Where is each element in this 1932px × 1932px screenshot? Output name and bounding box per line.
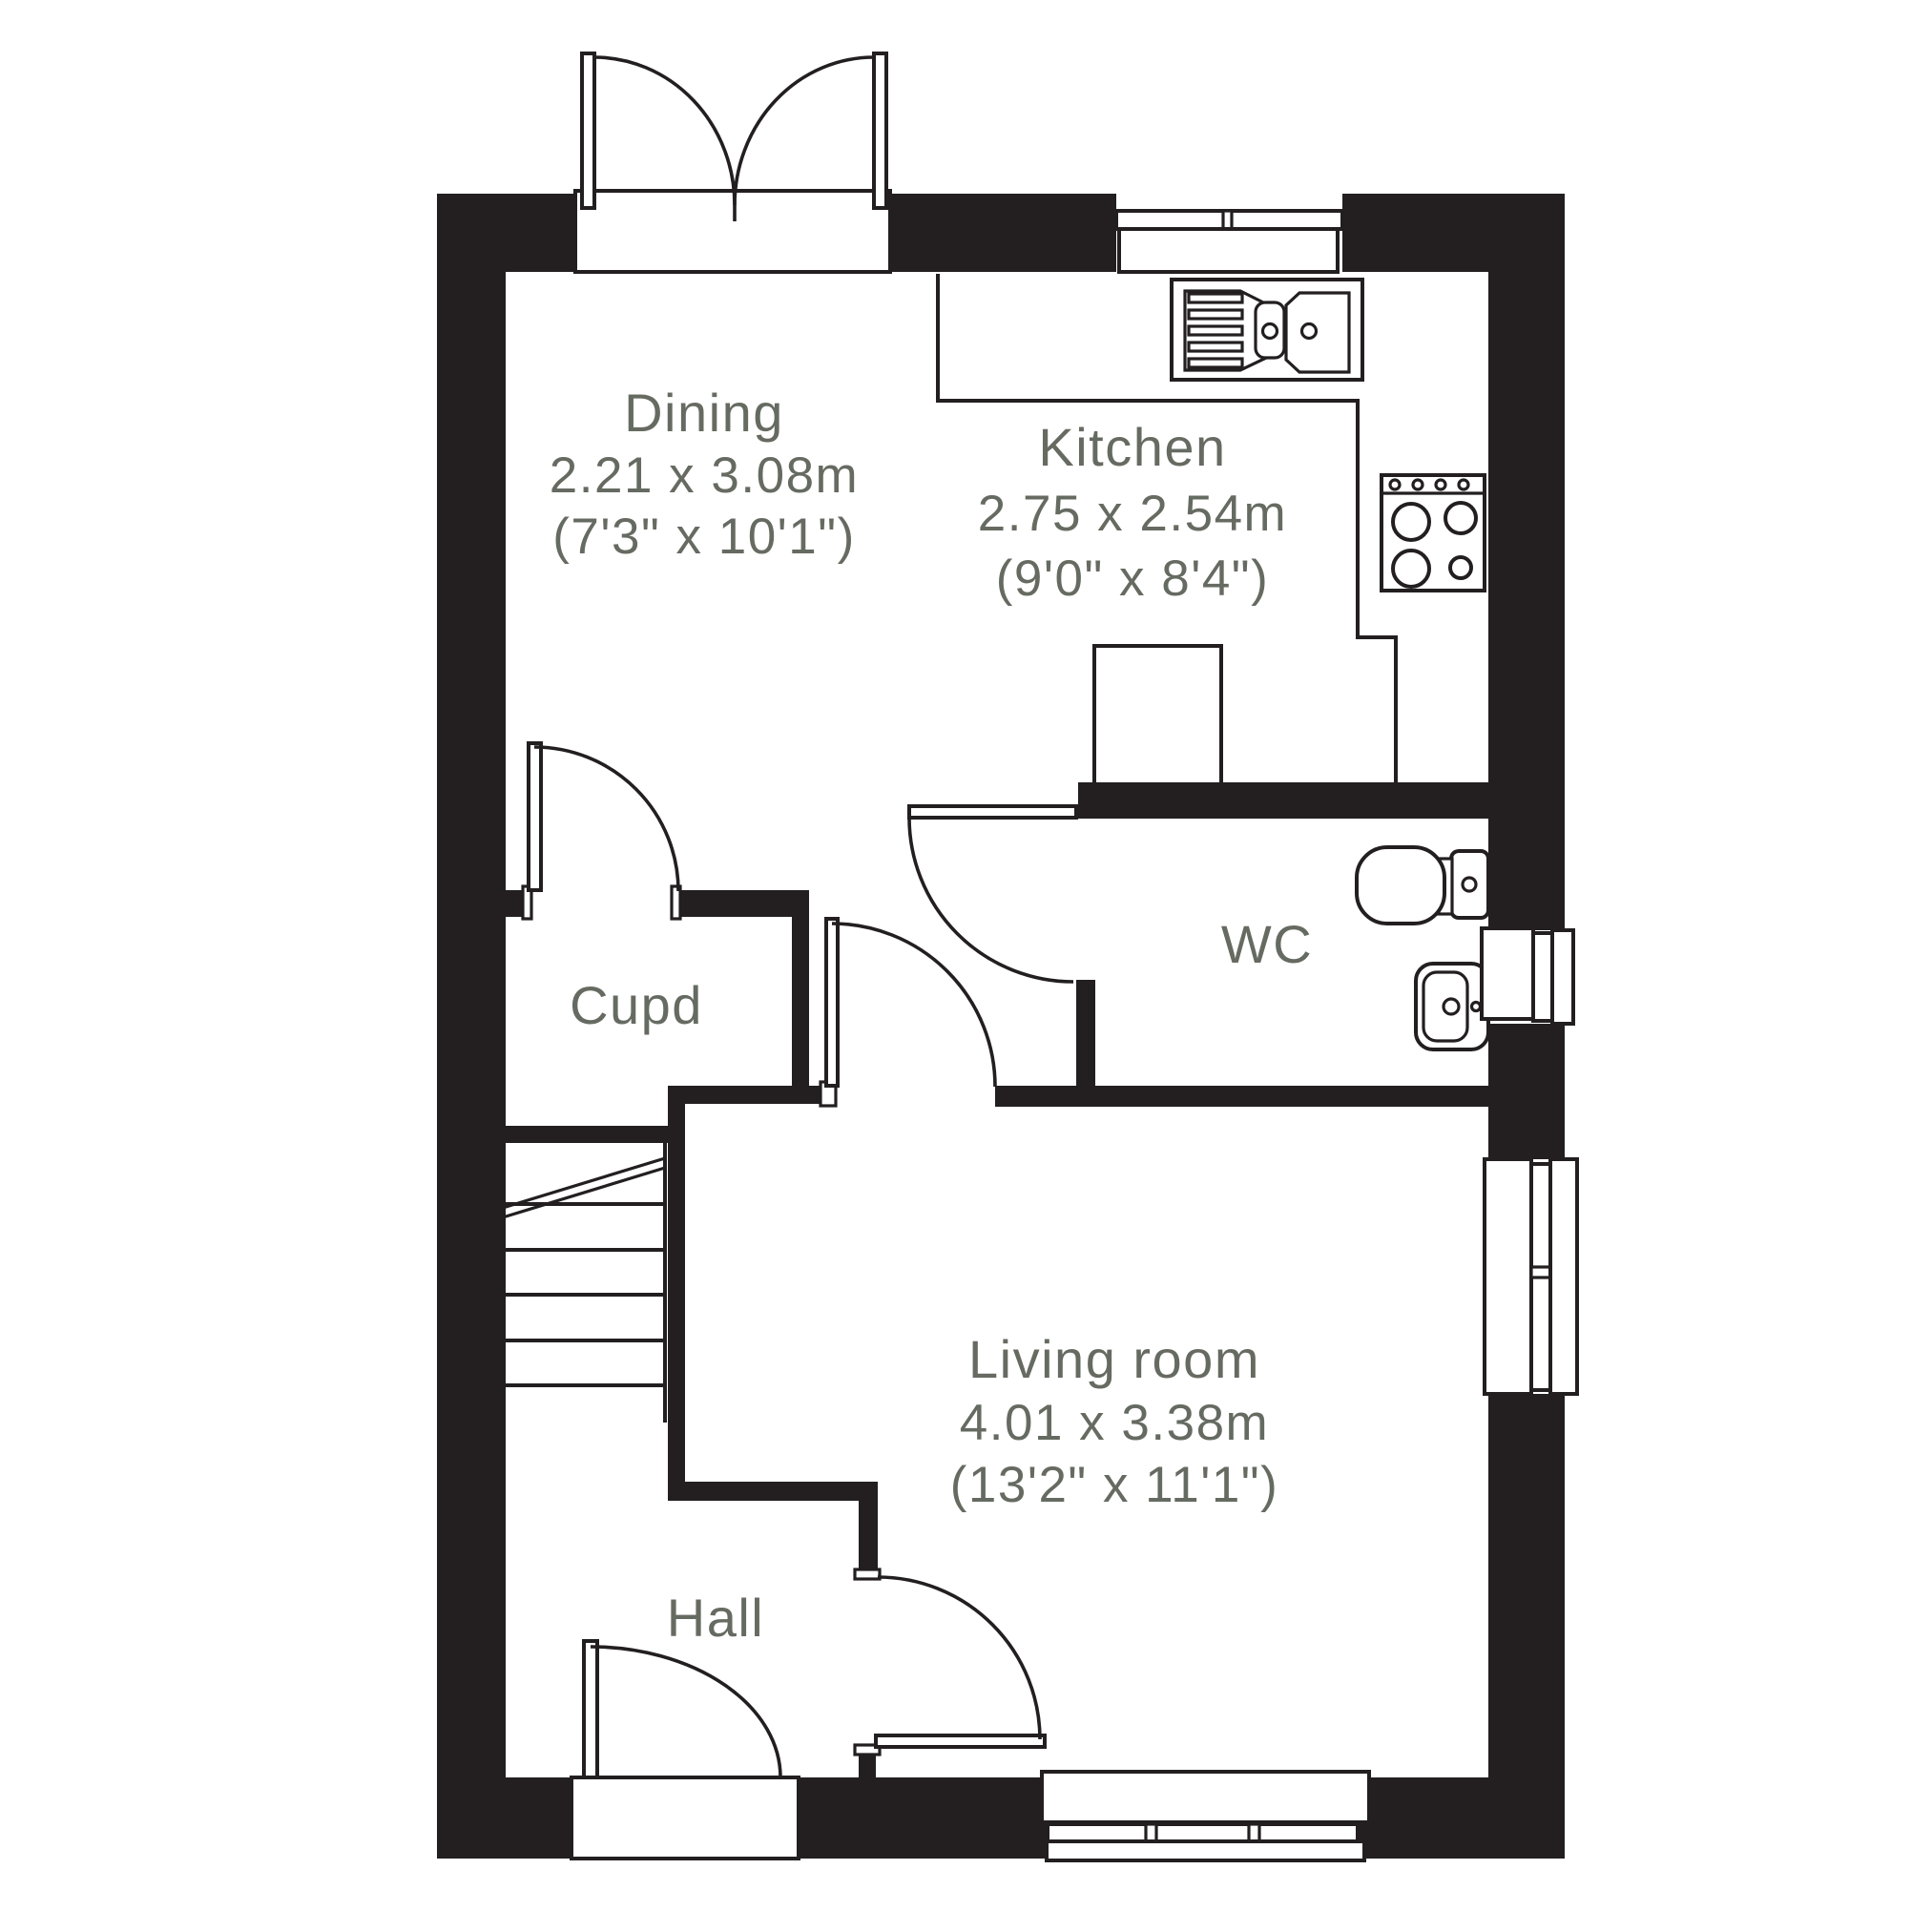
window-mullion xyxy=(1223,211,1232,229)
door-frame-notch xyxy=(855,1569,880,1579)
window-frame xyxy=(1550,1159,1577,1394)
window-mullion xyxy=(1531,1267,1550,1278)
door-leaf xyxy=(874,53,886,208)
wc-door xyxy=(909,806,1076,982)
wash-basin xyxy=(1416,964,1488,1049)
door-swing-arc xyxy=(594,57,735,205)
window-frame xyxy=(1552,930,1573,1024)
living-label: Living room xyxy=(968,1329,1260,1389)
wc-window xyxy=(1482,928,1573,1024)
window-mullion xyxy=(1249,1824,1259,1841)
wc-label: WC xyxy=(1221,914,1313,974)
window-sill xyxy=(1482,928,1533,1019)
door-leaf xyxy=(826,919,838,1086)
stair-break-line xyxy=(503,1168,665,1217)
drainer-slat xyxy=(1189,343,1242,351)
door-leaf xyxy=(529,743,541,890)
kitchen-sink xyxy=(1172,280,1362,380)
appliance-unit xyxy=(1094,646,1221,792)
cupboard-door xyxy=(529,743,678,891)
kitchen-label: Kitchen xyxy=(1038,417,1226,477)
window-glazing xyxy=(1533,933,1552,1021)
sink-half-bowl xyxy=(1256,302,1284,358)
door-swing-arc xyxy=(534,747,678,891)
floor-plan: Dining 2.21 x 3.08m (7'3" x 10'1") Kitch… xyxy=(0,0,1932,1932)
toilet-cistern xyxy=(1451,851,1488,918)
floor-plan-page: Dining 2.21 x 3.08m (7'3" x 10'1") Kitch… xyxy=(0,0,1932,1932)
toilet-bowl xyxy=(1357,847,1444,924)
dining-imperial: (7'3" x 10'1") xyxy=(552,509,856,565)
staircase xyxy=(503,1143,665,1423)
drainer-slat xyxy=(1189,326,1242,335)
cupboard-label: Cupd xyxy=(570,975,703,1035)
door-swing-arc xyxy=(878,1577,1040,1739)
door-threshold xyxy=(571,1777,799,1859)
hall-label: Hall xyxy=(667,1588,764,1648)
hall-living-door xyxy=(876,1577,1045,1747)
door-leaf xyxy=(584,1641,597,1777)
door-threshold xyxy=(575,191,890,272)
window-sill xyxy=(1485,1159,1531,1394)
hob xyxy=(1381,475,1485,591)
front-door xyxy=(571,1641,799,1859)
kitchen-metric: 2.75 x 2.54m xyxy=(978,486,1287,542)
living-room-rear-window xyxy=(1042,1772,1369,1860)
basin-bowl xyxy=(1423,972,1467,1041)
room-labels: Dining 2.21 x 3.08m (7'3" x 10'1") Kitch… xyxy=(550,383,1313,1648)
living-imperial: (13'2" x 11'1") xyxy=(950,1457,1279,1513)
sink-main-bowl xyxy=(1286,293,1349,372)
door-frame-notch xyxy=(672,886,680,919)
window-frame xyxy=(1047,1841,1364,1860)
french-doors xyxy=(575,53,890,272)
door-leaf xyxy=(582,53,594,208)
window-sill xyxy=(1042,1772,1369,1822)
living-metric: 4.01 x 3.38m xyxy=(960,1395,1269,1451)
window-sill xyxy=(1119,229,1338,272)
window-glazing xyxy=(1048,1824,1358,1841)
toilet xyxy=(1357,847,1488,924)
drainer-slat xyxy=(1189,294,1242,302)
door-leaf xyxy=(909,806,1076,818)
dining-metric: 2.21 x 3.08m xyxy=(550,447,859,504)
door-swing-arc xyxy=(591,1647,780,1777)
door-leaf xyxy=(876,1735,1045,1747)
internal-walls xyxy=(498,782,1488,1777)
drainer-slat xyxy=(1189,310,1242,319)
dining-label: Dining xyxy=(624,383,784,443)
door-swing-arc xyxy=(735,57,874,205)
living-room-side-window xyxy=(1485,1159,1577,1394)
window-mullion xyxy=(1146,1824,1156,1841)
kitchen-imperial: (9'0" x 8'4") xyxy=(996,551,1270,607)
kitchen-window xyxy=(1116,211,1342,272)
drainer-slat xyxy=(1189,359,1242,367)
stair-break-line xyxy=(503,1158,665,1208)
door-swing-arc xyxy=(832,924,995,1087)
